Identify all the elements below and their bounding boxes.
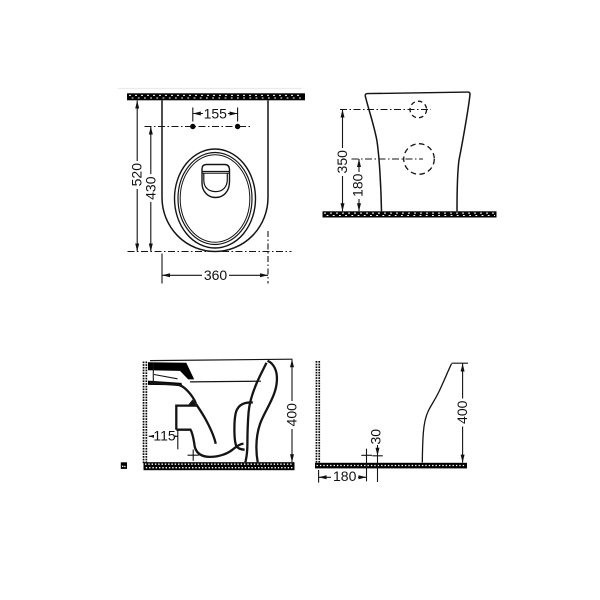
- svg-text:350: 350: [334, 150, 350, 174]
- svg-text:400: 400: [454, 400, 470, 424]
- svg-text:360: 360: [204, 267, 228, 283]
- svg-text:400: 400: [284, 403, 300, 427]
- svg-text:430: 430: [142, 176, 158, 200]
- svg-text:115: 115: [153, 428, 176, 444]
- svg-text:30: 30: [367, 429, 383, 445]
- svg-text:180: 180: [333, 468, 357, 484]
- svg-text:180: 180: [350, 173, 366, 197]
- svg-text:155: 155: [204, 105, 228, 121]
